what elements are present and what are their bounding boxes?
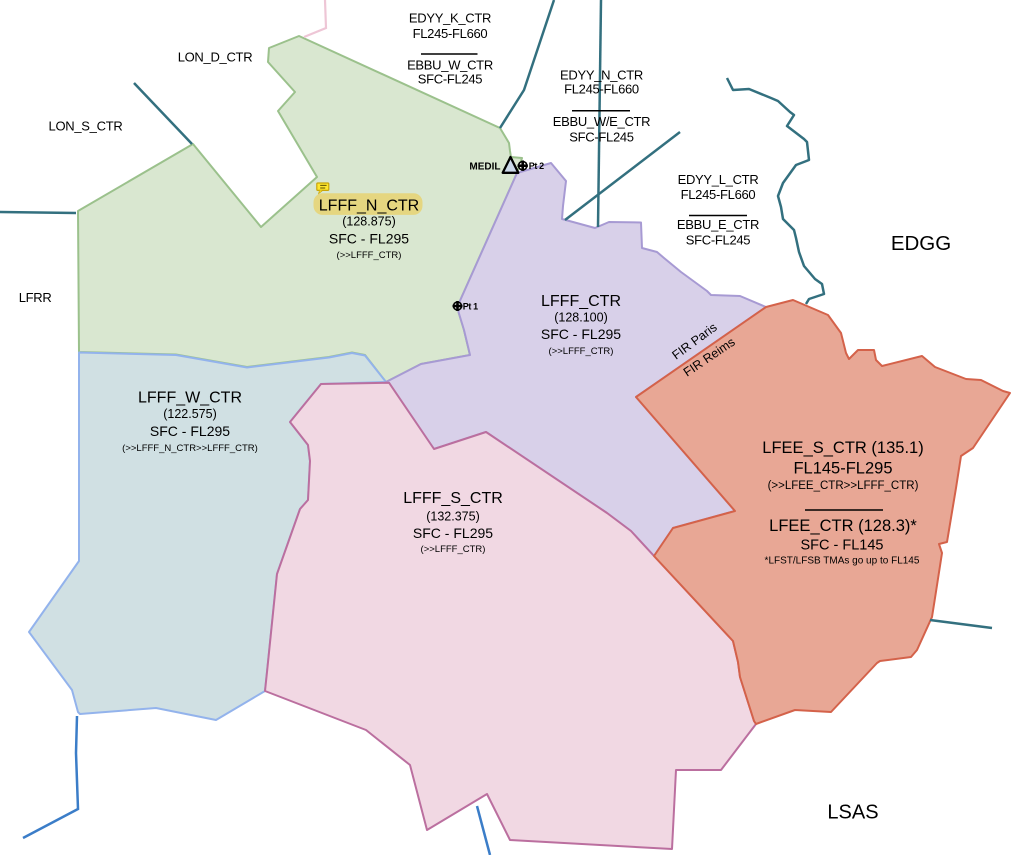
svg-text:(>>LFEE_CTR>>LFFF_CTR): (>>LFEE_CTR>>LFFF_CTR) (768, 480, 919, 492)
svg-text:EBBU_E_CTR: EBBU_E_CTR (677, 217, 759, 232)
svg-text:LFFF_W_CTR: LFFF_W_CTR (138, 390, 242, 407)
svg-text:EBBU_W/E_CTR: EBBU_W/E_CTR (553, 114, 651, 129)
svg-text:SFC - FL295: SFC - FL295 (413, 525, 493, 541)
svg-text:SFC - FL145: SFC - FL145 (801, 538, 884, 554)
svg-text:LFFF_CTR: LFFF_CTR (541, 293, 621, 310)
svg-text:EDYY_K_CTR: EDYY_K_CTR (409, 11, 491, 26)
svg-text:(128.100): (128.100) (554, 311, 608, 325)
svg-text:SFC - FL295: SFC - FL295 (329, 231, 409, 247)
svg-text:MEDIL: MEDIL (469, 162, 500, 173)
svg-text:LON_S_CTR: LON_S_CTR (49, 119, 123, 134)
svg-text:FL245-FL660: FL245-FL660 (681, 187, 756, 202)
svg-text:(132.375): (132.375) (426, 510, 480, 524)
svg-text:SFC - FL295: SFC - FL295 (541, 326, 621, 342)
svg-text:SFC-FL245: SFC-FL245 (686, 233, 751, 248)
svg-text:LSAS: LSAS (827, 802, 878, 824)
svg-text:(>>LFFF_CTR): (>>LFFF_CTR) (549, 346, 614, 357)
svg-text:LON_D_CTR: LON_D_CTR (178, 50, 253, 65)
svg-text:(122.575): (122.575) (163, 407, 217, 421)
svg-text:LFEE_CTR (128.3)*: LFEE_CTR (128.3)* (769, 517, 917, 535)
svg-text:SFC-FL245: SFC-FL245 (418, 72, 483, 87)
svg-text:LFFF_N_CTR: LFFF_N_CTR (319, 198, 419, 215)
svg-text:*LFST/LFSB TMAs go up to FL145: *LFST/LFSB TMAs go up to FL145 (765, 556, 920, 567)
svg-text:EDYY_L_CTR: EDYY_L_CTR (678, 172, 759, 187)
svg-text:Pt 2: Pt 2 (529, 161, 544, 171)
svg-text:SFC-FL245: SFC-FL245 (569, 130, 634, 145)
svg-text:FL245-FL660: FL245-FL660 (413, 26, 488, 41)
svg-text:LFEE_S_CTR (135.1): LFEE_S_CTR (135.1) (762, 439, 923, 457)
svg-text:LFFF_S_CTR: LFFF_S_CTR (403, 490, 503, 507)
svg-text:FL145-FL295: FL145-FL295 (793, 460, 892, 478)
svg-text:(>>LFFF_N_CTR>>LFFF_CTR): (>>LFFF_N_CTR>>LFFF_CTR) (122, 443, 258, 454)
svg-text:LFRR: LFRR (19, 290, 52, 305)
svg-text:FL245-FL660: FL245-FL660 (564, 82, 639, 97)
svg-text:(128.875): (128.875) (342, 215, 396, 229)
svg-text:EDGG: EDGG (891, 232, 951, 255)
svg-text:SFC - FL295: SFC - FL295 (150, 423, 230, 439)
svg-text:Pt 1: Pt 1 (463, 302, 478, 312)
svg-text:EBBU_W_CTR: EBBU_W_CTR (407, 58, 493, 73)
svg-text:(>>LFFF_CTR): (>>LFFF_CTR) (421, 544, 486, 555)
svg-text:EDYY_N_CTR: EDYY_N_CTR (560, 68, 643, 83)
svg-text:(>>LFFF_CTR): (>>LFFF_CTR) (337, 250, 402, 261)
